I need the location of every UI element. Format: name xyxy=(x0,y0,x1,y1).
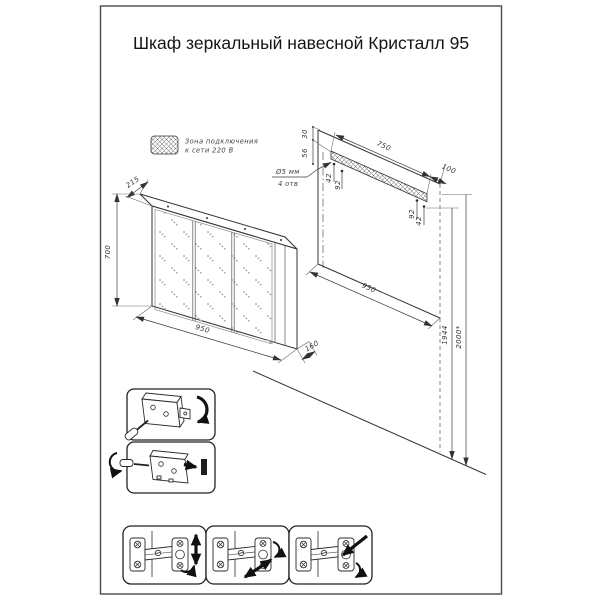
page-title: Шкаф зеркальный навесной Кристалл 95 xyxy=(133,33,469,53)
dim-label-30: 30 xyxy=(301,129,309,139)
dim-label-700: 700 xyxy=(104,245,112,260)
bracket-icon xyxy=(150,451,188,484)
legend-line-2: к сети 220 В xyxy=(185,147,234,155)
legend-line-1: Зона подключения xyxy=(185,138,258,146)
hinge-adjust-row xyxy=(123,526,372,584)
dim-label-1944: 1944 xyxy=(441,325,449,344)
bracket-adjust-box-1 xyxy=(124,389,215,441)
dim-label-42-left: 42 xyxy=(325,173,333,183)
dim-label-42-right: 42 xyxy=(415,216,423,226)
dim-label-92-left: 92 xyxy=(334,180,342,190)
dim-label-2000: 2000* xyxy=(455,325,463,348)
hatch-swatch-icon xyxy=(151,136,178,154)
hinge-adjust-box-3 xyxy=(289,526,372,584)
instruction-sheet: Шкаф зеркальный навесной Кристалл 95 Зон… xyxy=(0,0,600,600)
hinge-adjust-box-1 xyxy=(123,526,206,584)
technical-drawing-svg: Шкаф зеркальный навесной Кристалл 95 Зон… xyxy=(0,0,600,600)
hole-note-count: 4 отв xyxy=(278,180,298,188)
wall-block-icon xyxy=(201,459,207,475)
hinge-adjust-box-2 xyxy=(206,526,289,584)
dim-label-56: 56 xyxy=(301,148,309,158)
hole-note-diameter: Ø5 мм xyxy=(275,168,300,176)
